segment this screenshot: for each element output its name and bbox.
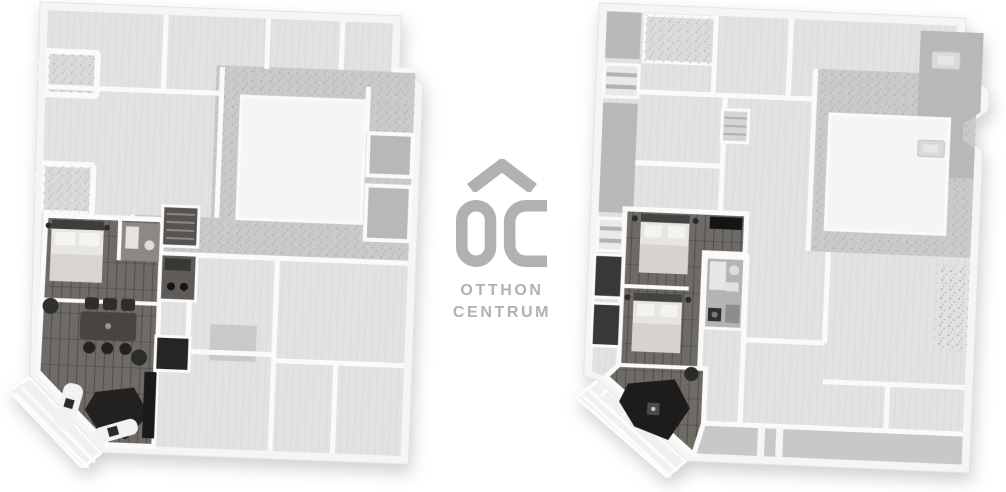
utility-room xyxy=(209,324,257,362)
logo-wordmark-line1: OTTHON xyxy=(460,283,543,299)
floor-plan-left-drawing xyxy=(0,0,441,481)
floor-plan-right-drawing xyxy=(557,0,1006,492)
dining-table-icon xyxy=(79,297,137,355)
courtyard-lightwell xyxy=(237,96,366,223)
bathroom xyxy=(703,257,744,330)
side-gallery xyxy=(934,265,970,351)
floor-plan-left xyxy=(8,5,432,473)
stairs-icon xyxy=(161,206,199,248)
logo-wordmark-line2: CENTRUM xyxy=(453,305,551,321)
bathroom xyxy=(121,222,161,262)
wardrobe-icon xyxy=(710,216,743,230)
shelving-icon xyxy=(142,372,157,439)
oc-monogram xyxy=(455,199,549,268)
floor-plan-right xyxy=(567,5,1003,485)
stairs-icon xyxy=(721,109,749,143)
kitchen-counter xyxy=(159,254,197,302)
courtyard-lightwell xyxy=(825,114,949,234)
page: OC OTTHON CENTRUM xyxy=(0,0,1006,492)
roof-caret-icon xyxy=(466,159,538,192)
wardrobe-nook xyxy=(155,336,190,371)
otthon-centrum-logo: OC OTTHON CENTRUM xyxy=(446,159,558,321)
bed-icon xyxy=(44,219,111,283)
top-balcony-room xyxy=(644,15,717,65)
dark-rooms xyxy=(365,133,413,241)
